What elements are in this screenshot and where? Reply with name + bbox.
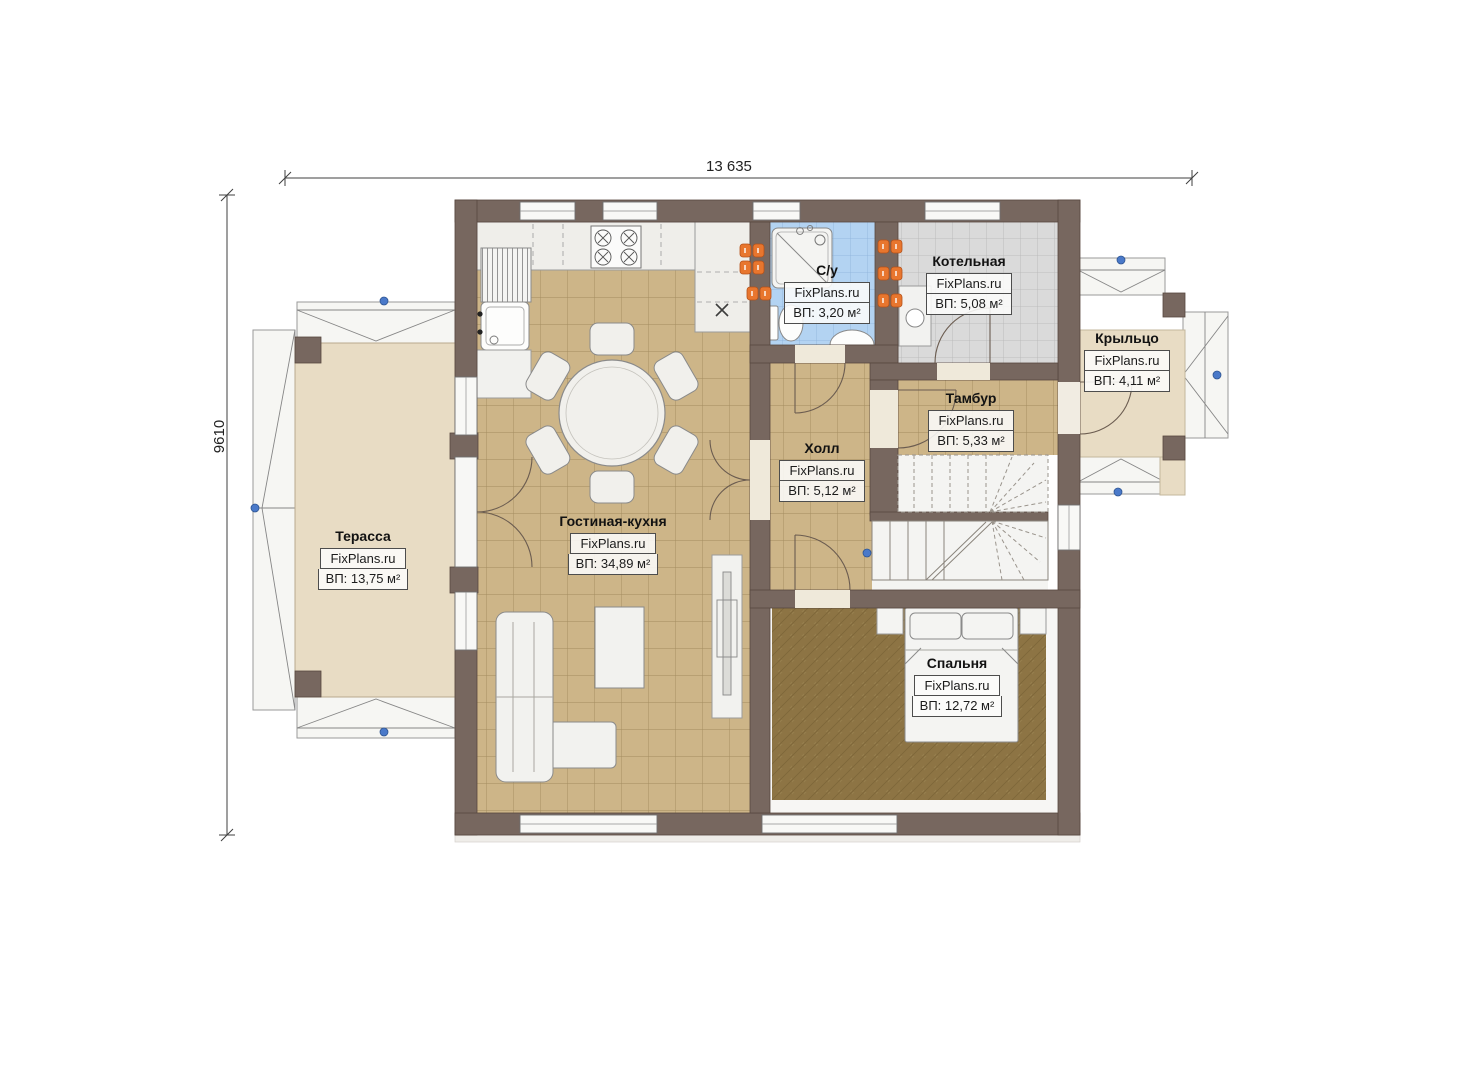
shower xyxy=(772,225,832,288)
nightstand-right xyxy=(1020,608,1046,634)
dimension-height-label: 9610 xyxy=(211,420,228,453)
dimension-width-label: 13 635 xyxy=(706,158,752,175)
coffee-table xyxy=(595,607,644,688)
bed xyxy=(905,608,1018,742)
foundation-edge xyxy=(455,835,1080,842)
kitchen-sink-unit xyxy=(477,248,531,350)
floorplan-page: 13 635 9610 Терасса FixPlans.ru ВП: 13,7… xyxy=(0,0,1474,1080)
terrace-floor xyxy=(295,343,455,697)
tv-stand xyxy=(712,555,742,718)
kitchen-appliance-box xyxy=(477,350,531,398)
toilet xyxy=(766,305,803,341)
nightstand-left xyxy=(877,608,903,634)
hall-floor xyxy=(770,363,872,592)
cooktop-stove xyxy=(591,226,641,268)
boiler-unit xyxy=(899,286,931,346)
vestibule-floor xyxy=(898,380,1058,455)
dining-table xyxy=(559,360,665,466)
